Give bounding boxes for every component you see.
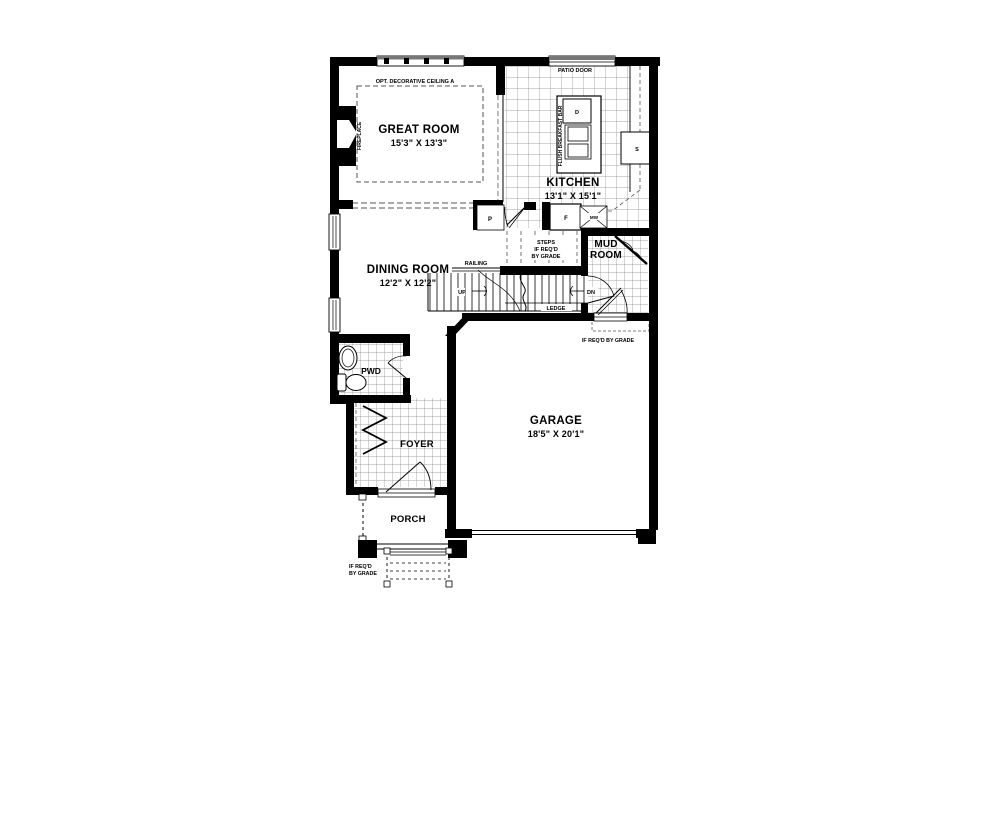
dining-window-1	[329, 214, 340, 250]
flush-breakfast-bar-label: FLUSH BREAKFAST BAR	[558, 105, 564, 166]
opt-ceiling-label: OPT. DECORATIVE CEILING A	[376, 79, 455, 85]
dining-window-2	[329, 298, 340, 332]
grade-note-porch-1: IF REQ'D	[349, 564, 372, 570]
garage-door	[472, 531, 636, 535]
porch-label: PORCH	[390, 514, 425, 525]
garage-label: GARAGE	[530, 415, 582, 427]
garage-dims: 18'5" X 20'1"	[528, 429, 584, 439]
floorplan-canvas: OPT. DECORATIVE CEILING A GREAT ROOM 15'…	[0, 0, 990, 819]
greatroom-window	[377, 56, 464, 66]
grade-note-garage: IF REQ'D BY GRADE	[582, 338, 635, 344]
patio-door	[549, 56, 615, 66]
porch-column-left	[358, 540, 377, 558]
steps-if-reqd-mudroom	[592, 322, 649, 331]
railing-label: RAILING	[465, 261, 488, 267]
fireplace-label: FIREPLACE	[357, 121, 363, 150]
steps-label-1: STEPS	[537, 240, 555, 246]
grade-note-porch-2: BY GRADE	[349, 571, 377, 577]
great-room-label: GREAT ROOM	[378, 124, 459, 136]
dn-label: DN	[587, 290, 595, 296]
fridge-label: F	[564, 216, 568, 222]
mud-room-label-1: MUD	[594, 239, 617, 250]
porch-steps	[384, 548, 452, 587]
microwave-label: MW	[590, 215, 599, 220]
pantry-label: P	[488, 217, 492, 223]
ledge-label: LEDGE	[547, 306, 566, 312]
kitchen-label: KITCHEN	[546, 177, 599, 189]
great-room-dims: 15'3" X 13'3"	[391, 138, 447, 148]
pwd-toilet	[337, 374, 366, 391]
steps-label-2: IF REQ'D	[534, 247, 558, 253]
patio-door-label: PATIO DOOR	[558, 68, 592, 74]
dining-room-label: DINING ROOM	[367, 264, 450, 276]
dining-room-dims: 12'2" X 12'2"	[380, 278, 436, 288]
sink-label: S	[635, 147, 639, 153]
dishwasher-label: D	[575, 110, 579, 116]
pwd-label: PWD	[361, 366, 381, 376]
foyer-label: FOYER	[400, 439, 434, 450]
up-arrow	[472, 286, 487, 296]
floorplan-drawing: OPT. DECORATIVE CEILING A GREAT ROOM 15'…	[0, 0, 990, 819]
mud-room-label-2: ROOM	[590, 250, 622, 261]
fireplace	[333, 106, 357, 166]
up-label: UP	[458, 290, 466, 296]
steps-label-3: BY GRADE	[532, 254, 561, 260]
kitchen-dims: 13'1" X 15'1"	[545, 191, 601, 201]
